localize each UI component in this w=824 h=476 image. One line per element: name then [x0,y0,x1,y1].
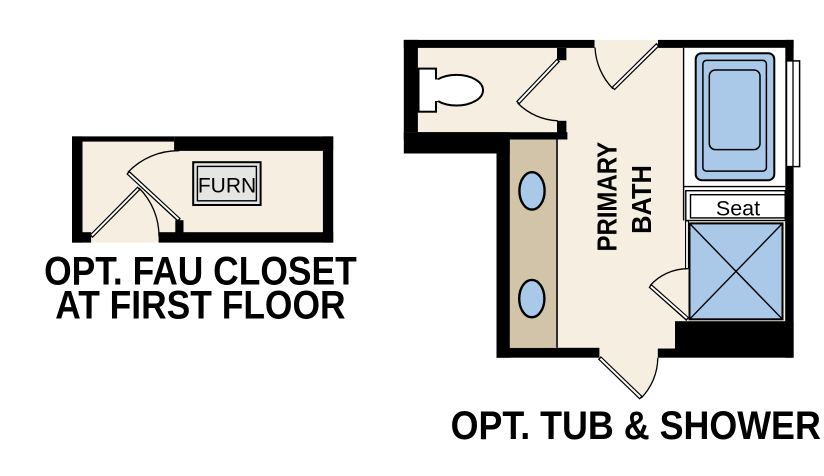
svg-text:FURN: FURN [198,174,256,197]
svg-text:OPT. TUB & SHOWER: OPT. TUB & SHOWER [451,404,821,448]
svg-text:PRIMARY: PRIMARY [593,142,623,252]
svg-text:AT FIRST FLOOR: AT FIRST FLOOR [55,283,345,327]
svg-text:BATH: BATH [626,165,657,234]
svg-text:Seat: Seat [716,197,760,221]
